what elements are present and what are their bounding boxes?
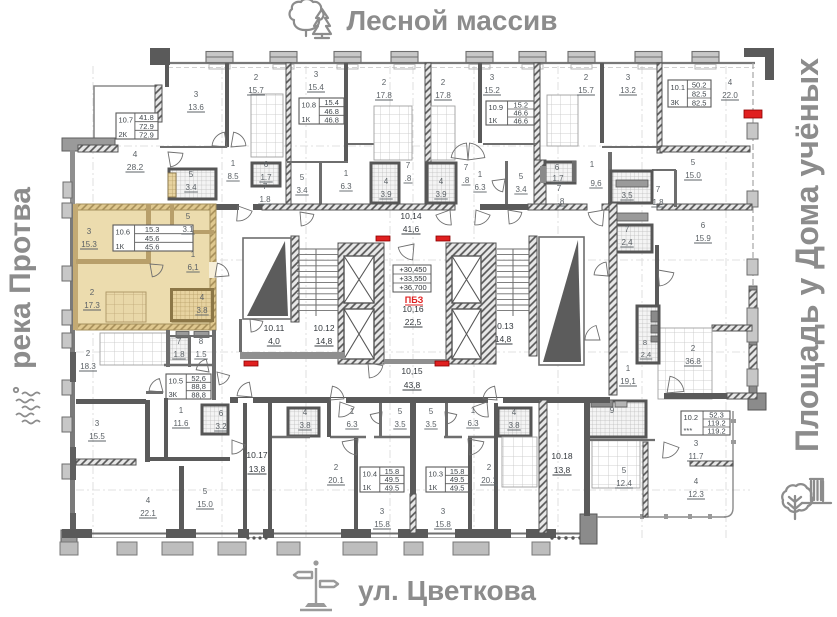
svg-text:2,4: 2,4 [641,350,651,359]
svg-text:4: 4 [200,293,205,302]
svg-text:10.1: 10.1 [671,83,686,92]
svg-text:6,1: 6,1 [187,263,199,272]
svg-text:46.8: 46.8 [324,107,339,116]
svg-text:72.9: 72.9 [139,122,154,131]
svg-text:Площадь у Дома учёных: Площадь у Дома учёных [789,58,825,452]
svg-text:5: 5 [519,172,524,181]
svg-text:5: 5 [622,466,627,475]
svg-text:15.3: 15.3 [81,240,97,249]
svg-text:2: 2 [691,344,696,353]
svg-text:3: 3 [95,419,100,428]
svg-text:15.3: 15.3 [145,225,160,234]
svg-text:46.8: 46.8 [324,116,339,125]
svg-text:17.8: 17.8 [435,91,451,100]
svg-text:17.8: 17.8 [376,91,392,100]
svg-text:3: 3 [194,90,199,99]
svg-text:2: 2 [382,78,387,87]
svg-text:2,4: 2,4 [621,238,633,247]
svg-text:6.3: 6.3 [340,182,352,191]
svg-text:2: 2 [90,288,95,297]
svg-text:Лесной массив: Лесной массив [347,5,558,36]
svg-text:3: 3 [626,73,631,82]
svg-text:1К: 1К [116,242,125,251]
svg-text:7: 7 [177,337,182,346]
svg-text:1К: 1К [429,483,438,492]
svg-text:1.8: 1.8 [173,350,185,359]
svg-text:43,8: 43,8 [404,380,421,390]
svg-text:4: 4 [146,496,151,505]
svg-text:8.5: 8.5 [227,172,239,181]
svg-text:20.1: 20.1 [481,476,497,485]
svg-text:10,16: 10,16 [402,304,424,314]
svg-text:22.0: 22.0 [722,91,738,100]
svg-text:1: 1 [590,160,595,169]
svg-text:15.0: 15.0 [197,500,213,509]
svg-text:10.8: 10.8 [302,101,317,110]
svg-text:6: 6 [264,160,269,169]
svg-text:5: 5 [300,173,305,182]
svg-text:72.9: 72.9 [139,131,154,140]
svg-text:14,8: 14,8 [316,336,333,346]
svg-text:14,8: 14,8 [495,334,512,344]
svg-text:3.8: 3.8 [299,421,311,430]
svg-text:.8: .8 [558,197,565,206]
svg-text:88,8: 88,8 [191,391,206,400]
svg-text:+33,550: +33,550 [399,274,426,283]
svg-text:3.8: 3.8 [196,306,208,315]
svg-text:4: 4 [303,408,308,417]
svg-text:5: 5 [189,170,194,179]
svg-text:22.1: 22.1 [140,509,156,518]
svg-text:11.6: 11.6 [174,419,190,428]
svg-text:15.0: 15.0 [685,171,701,180]
svg-text:41,6: 41,6 [403,224,420,234]
svg-text:10.2: 10.2 [684,413,699,422]
svg-text:11.7: 11.7 [689,452,705,461]
svg-text:3.5: 3.5 [425,420,437,429]
svg-text:6.3: 6.3 [467,419,479,428]
svg-text:3.2: 3.2 [215,422,227,431]
svg-text:17.3: 17.3 [84,301,100,310]
svg-text:4: 4 [694,477,699,486]
svg-text:1К: 1К [489,116,498,125]
svg-text:3.4: 3.4 [515,185,527,194]
svg-text:1: 1 [478,170,483,179]
svg-text:10.3: 10.3 [429,469,444,478]
svg-text:4: 4 [728,78,733,87]
svg-text:1.8: 1.8 [652,198,664,207]
svg-text:7: 7 [656,185,661,194]
svg-text:10,15: 10,15 [401,366,423,376]
svg-text:1: 1 [626,364,631,373]
svg-text:46.6: 46.6 [513,117,528,126]
svg-text:2: 2 [584,73,589,82]
svg-text:45.6: 45.6 [145,234,160,243]
svg-text:1.7: 1.7 [552,174,564,183]
svg-text:5: 5 [691,158,696,167]
svg-text:4,0: 4,0 [268,336,280,346]
svg-text:4: 4 [439,177,444,186]
svg-text:49.5: 49.5 [450,484,465,493]
svg-text:3.8: 3.8 [508,421,520,430]
svg-text:4: 4 [512,408,517,417]
svg-text:3: 3 [441,507,446,516]
svg-text:10.4: 10.4 [363,469,378,478]
svg-text:28.2: 28.2 [127,162,144,172]
svg-text:3: 3 [87,227,92,236]
svg-text:50.2: 50.2 [692,81,707,90]
svg-text:3.4: 3.4 [185,183,197,192]
svg-text:8: 8 [643,338,647,347]
svg-text:15.7: 15.7 [248,86,264,95]
svg-text:2: 2 [334,463,339,472]
svg-text:+30,450: +30,450 [399,265,426,274]
svg-text:3: 3 [694,439,699,448]
svg-text:5: 5 [429,407,434,416]
svg-text:7: 7 [557,184,562,193]
svg-text:10.12: 10.12 [313,323,335,333]
svg-text:2: 2 [441,78,446,87]
svg-text:3.1: 3.1 [182,225,194,234]
svg-text:22,5: 22,5 [405,317,422,327]
svg-text:13,8: 13,8 [554,465,571,475]
svg-text:1.7: 1.7 [260,173,272,182]
svg-text:6: 6 [701,221,706,230]
svg-text:6.3: 6.3 [474,183,486,192]
svg-text:3К: 3К [671,98,680,107]
svg-text:.8: .8 [463,176,470,185]
svg-text:5: 5 [203,487,208,496]
svg-text:82.5: 82.5 [692,90,707,99]
svg-text:3.9: 3.9 [435,190,447,199]
svg-text:10.18: 10.18 [551,451,573,461]
svg-text:3: 3 [314,70,319,79]
svg-text:15.5: 15.5 [89,432,105,441]
svg-text:9,6: 9,6 [590,179,602,188]
svg-text:13.2: 13.2 [620,86,636,95]
svg-text:2К: 2К [119,130,128,139]
svg-text:1: 1 [344,169,349,178]
svg-text:2: 2 [254,73,259,82]
svg-text:4: 4 [384,177,389,186]
svg-text:2: 2 [86,349,91,358]
svg-text:7: 7 [406,161,411,170]
svg-text:10.7: 10.7 [119,116,134,125]
svg-text:6.3: 6.3 [346,420,358,429]
svg-text:15.7: 15.7 [578,86,594,95]
svg-text:3К: 3К [169,390,178,399]
svg-text:+36,700: +36,700 [399,283,426,292]
svg-text:10.17: 10.17 [246,450,268,460]
svg-text:20.1: 20.1 [328,476,344,485]
svg-text:1: 1 [231,159,236,168]
svg-text:12.4: 12.4 [616,479,632,488]
svg-text:1.5: 1.5 [195,350,207,359]
svg-text:10.5: 10.5 [169,376,184,385]
svg-text:10.11: 10.11 [264,323,285,333]
svg-text:15.8: 15.8 [374,520,390,529]
svg-text:15.4: 15.4 [324,98,339,107]
svg-text:1: 1 [191,250,196,259]
svg-text:7: 7 [464,163,469,172]
svg-text:5: 5 [186,212,191,221]
svg-text:49.5: 49.5 [385,484,400,493]
svg-text:18.3: 18.3 [80,362,96,371]
svg-text:7: 7 [263,182,268,191]
svg-text:1: 1 [179,406,184,415]
svg-text:1.8: 1.8 [259,195,271,204]
svg-text:15.4: 15.4 [308,83,324,92]
svg-text:5: 5 [398,407,403,416]
svg-text:.8: .8 [405,174,412,183]
svg-text:15.2: 15.2 [484,86,500,95]
svg-text:45.6: 45.6 [145,243,160,252]
svg-text:ПБЗ: ПБЗ [405,295,424,305]
svg-text:1К: 1К [363,483,372,492]
svg-text:6: 6 [219,409,224,418]
svg-text:10.9: 10.9 [489,103,504,112]
svg-text:3.4: 3.4 [296,186,308,195]
svg-text:10,14: 10,14 [400,211,422,221]
svg-text:119.2: 119.2 [707,427,725,436]
svg-text:3.9: 3.9 [380,190,392,199]
svg-text:12.3: 12.3 [688,490,704,499]
svg-text:15.8: 15.8 [435,520,451,529]
svg-text:13,8: 13,8 [249,464,266,474]
svg-text:2: 2 [487,463,492,472]
svg-text:3: 3 [490,73,495,82]
svg-text:19,1: 19,1 [620,377,636,386]
svg-text:7: 7 [625,225,630,234]
svg-text:4: 4 [133,149,138,159]
svg-text:3,5: 3,5 [621,191,633,200]
svg-text:36.8: 36.8 [685,357,701,366]
svg-text:9: 9 [610,406,615,415]
svg-text:ул. Цветкова: ул. Цветкова [358,575,536,606]
svg-text:река Протва: река Протва [4,187,37,369]
svg-text:8: 8 [199,337,204,346]
svg-text:3.5: 3.5 [394,420,406,429]
svg-text:10.6: 10.6 [116,228,131,237]
svg-text:1К: 1К [302,115,311,124]
svg-text:15.9: 15.9 [695,234,711,243]
svg-text:3: 3 [380,507,385,516]
svg-text:6: 6 [555,163,560,172]
svg-text:13.6: 13.6 [188,103,204,112]
svg-text:***: *** [684,426,693,435]
svg-text:41.8: 41.8 [139,113,154,122]
svg-text:82.5: 82.5 [692,99,707,108]
